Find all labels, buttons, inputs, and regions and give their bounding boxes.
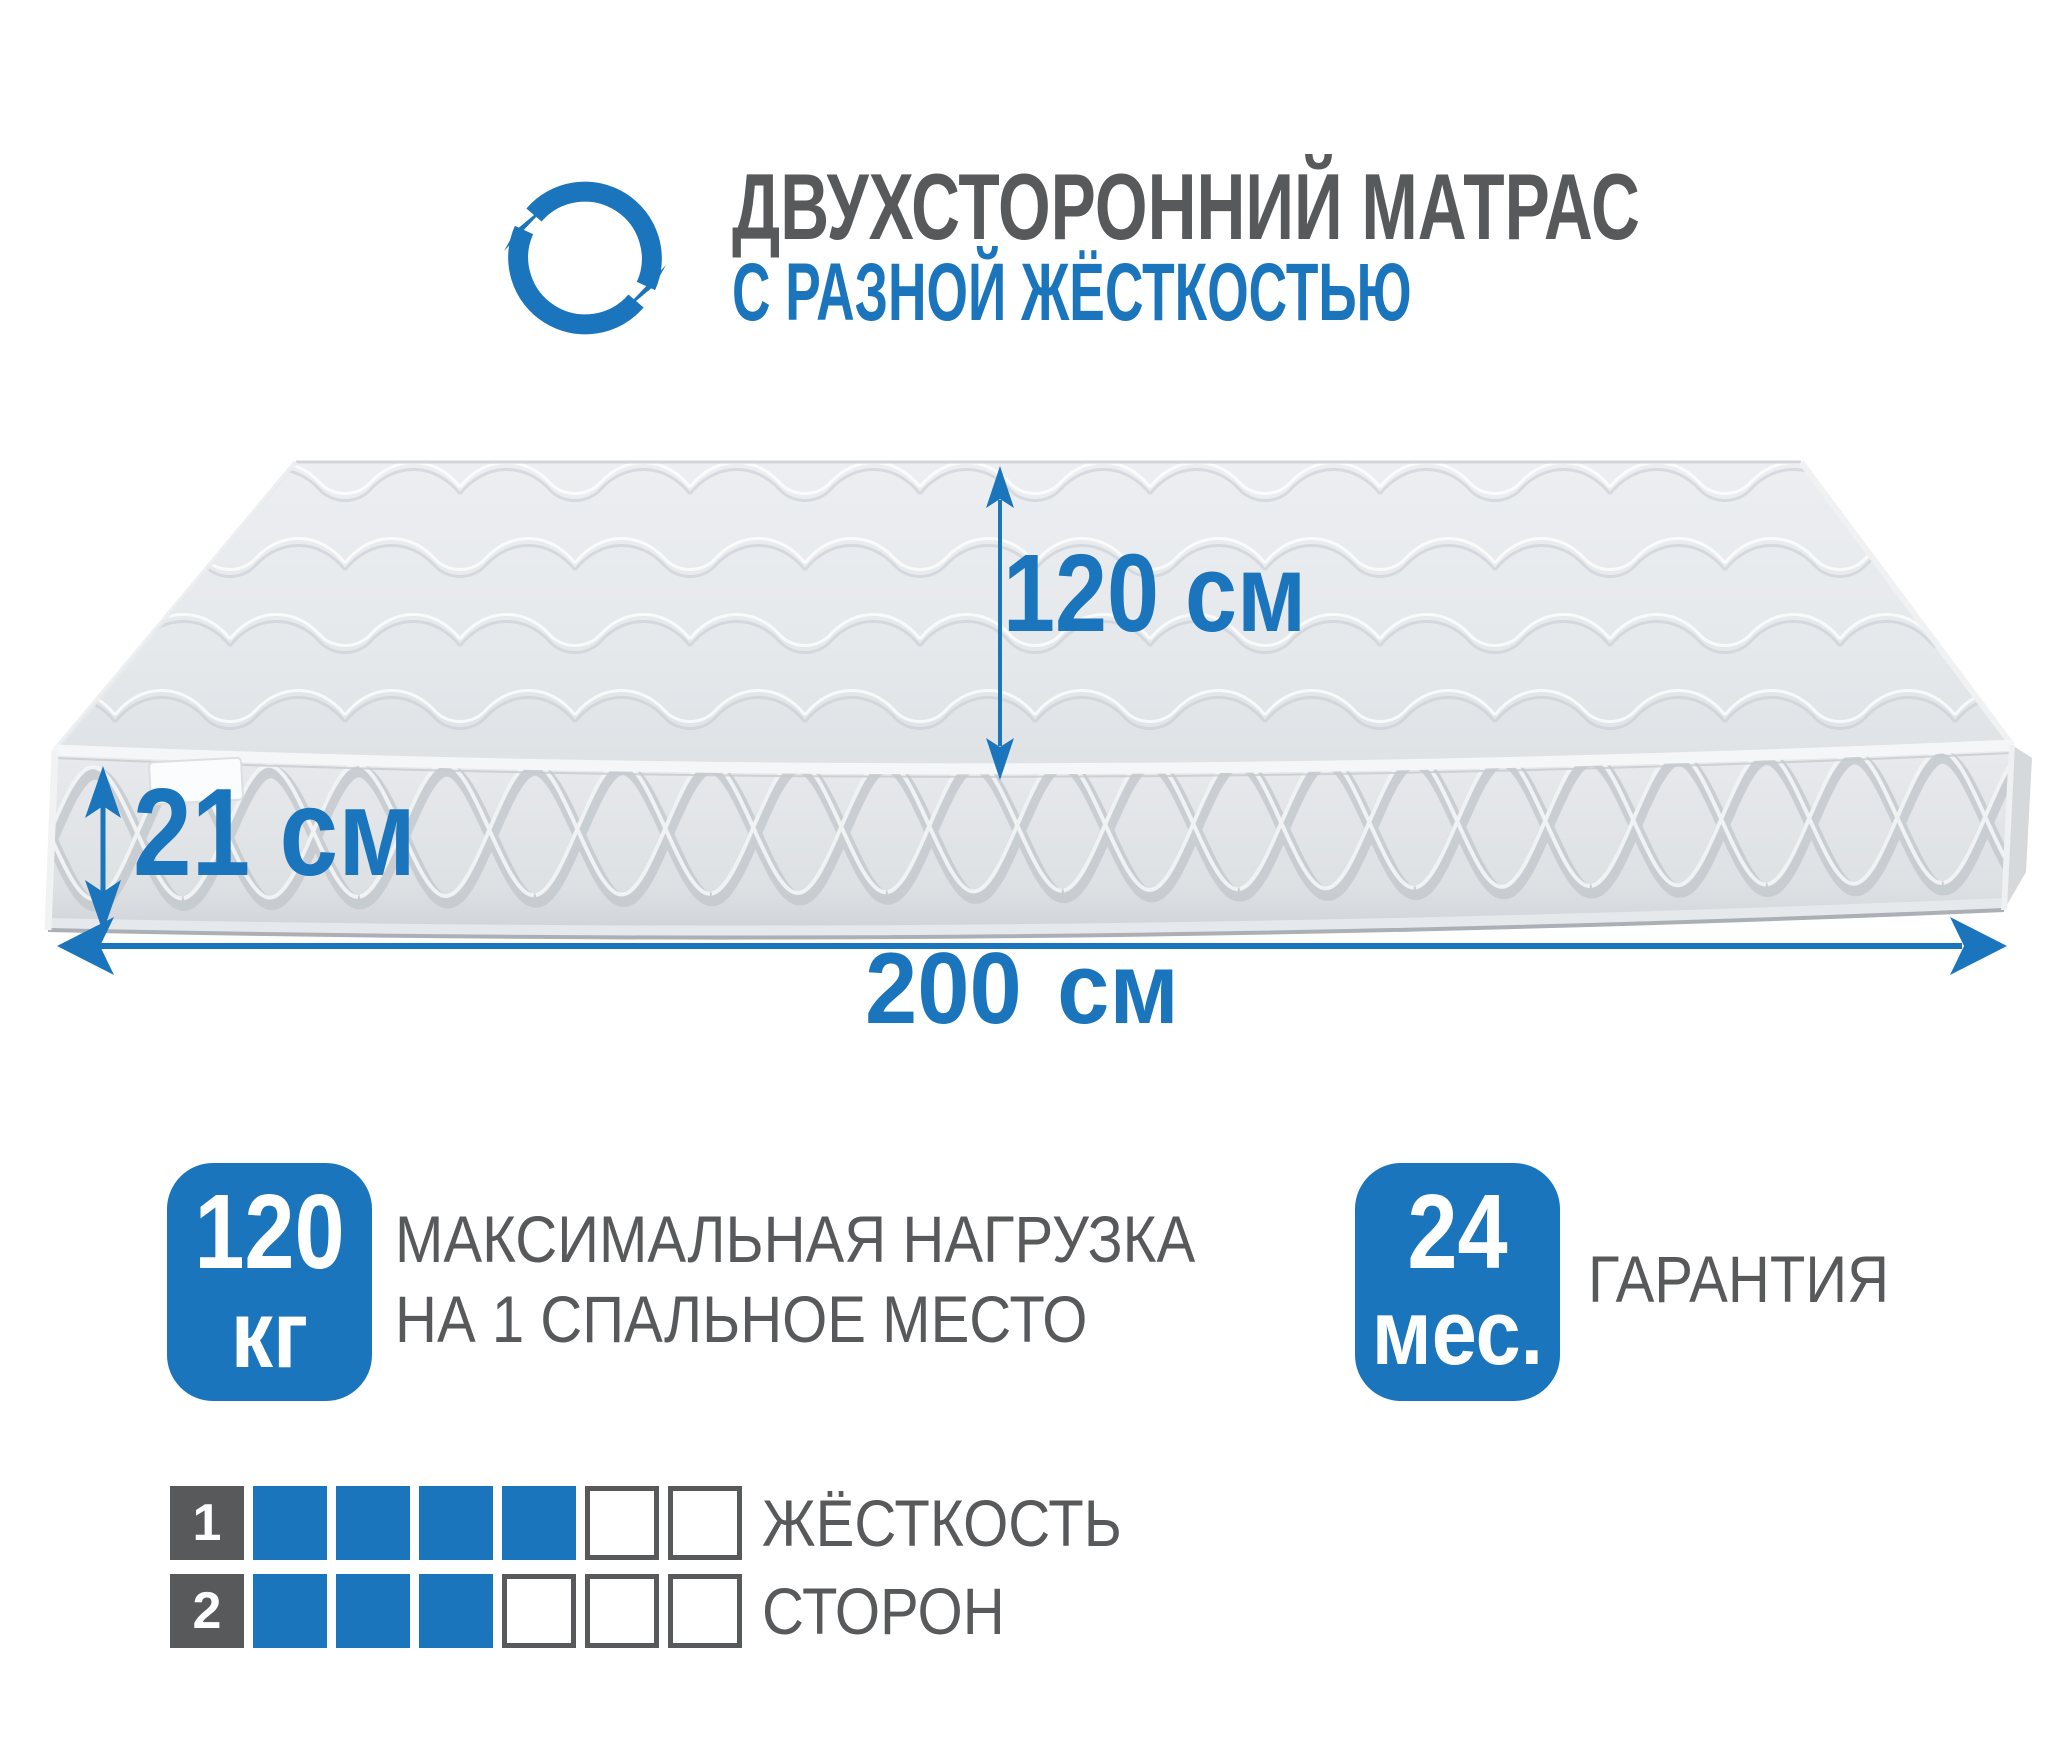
hardness-caption-line1: ЖЁСТКОСТЬ bbox=[762, 1486, 1122, 1560]
max-load-unit: кг bbox=[179, 1287, 359, 1383]
hardness-cell-empty bbox=[585, 1574, 659, 1648]
hardness-cell-filled bbox=[336, 1574, 410, 1648]
warranty-unit: мес. bbox=[1367, 1287, 1547, 1379]
hardness-scale: 12 bbox=[170, 1486, 742, 1662]
page-subtitle: С РАЗНОЙ ЖЁСТКОСТЬЮ bbox=[732, 252, 1412, 334]
max-load-caption-line1: МАКСИМАЛЬНАЯ НАГРУЗКА bbox=[395, 1199, 1195, 1279]
hardness-cell-filled bbox=[336, 1486, 410, 1560]
hardness-cell-empty bbox=[585, 1486, 659, 1560]
hardness-cell-empty bbox=[668, 1486, 742, 1560]
hardness-cell-filled bbox=[419, 1486, 493, 1560]
warranty-badge: 24 мес. bbox=[1355, 1163, 1560, 1401]
width-dimension-label: 120 см bbox=[1003, 539, 1306, 649]
hardness-cell-empty bbox=[668, 1574, 742, 1648]
max-load-caption-line2: НА 1 СПАЛЬНОЕ МЕСТО bbox=[395, 1279, 1195, 1359]
hardness-row-side-1: 1 bbox=[170, 1486, 742, 1560]
hardness-cell-empty bbox=[502, 1574, 576, 1648]
max-load-value: 120 bbox=[182, 1179, 356, 1285]
max-load-badge: 120 кг bbox=[167, 1163, 372, 1401]
mattress-infographic: ДВУХСТОРОННИЙ МАТРАС С РАЗНОЙ ЖЁСТКОСТЬЮ… bbox=[0, 0, 2048, 1757]
hardness-cell-filled bbox=[253, 1574, 327, 1648]
length-dimension-label: 200 см bbox=[865, 939, 1179, 1040]
hardness-caption-line2: СТОРОН bbox=[762, 1574, 1005, 1648]
page-title: ДВУХСТОРОННИЙ МАТРАС bbox=[732, 160, 1640, 254]
hardness-cell-filled bbox=[419, 1574, 493, 1648]
hardness-side-label: 2 bbox=[170, 1574, 244, 1648]
warranty-caption: ГАРАНТИЯ bbox=[1588, 1246, 1889, 1312]
hardness-cell-filled bbox=[253, 1486, 327, 1560]
warranty-value: 24 bbox=[1370, 1179, 1544, 1285]
hardness-cell-filled bbox=[502, 1486, 576, 1560]
hardness-row-side-2: 2 bbox=[170, 1574, 742, 1648]
max-load-caption: МАКСИМАЛЬНАЯ НАГРУЗКА НА 1 СПАЛЬНОЕ МЕСТ… bbox=[395, 1199, 1195, 1359]
hardness-side-label: 1 bbox=[170, 1486, 244, 1560]
thickness-dimension-label: 21 см bbox=[133, 771, 416, 895]
rotate-arrows-icon bbox=[504, 192, 666, 325]
